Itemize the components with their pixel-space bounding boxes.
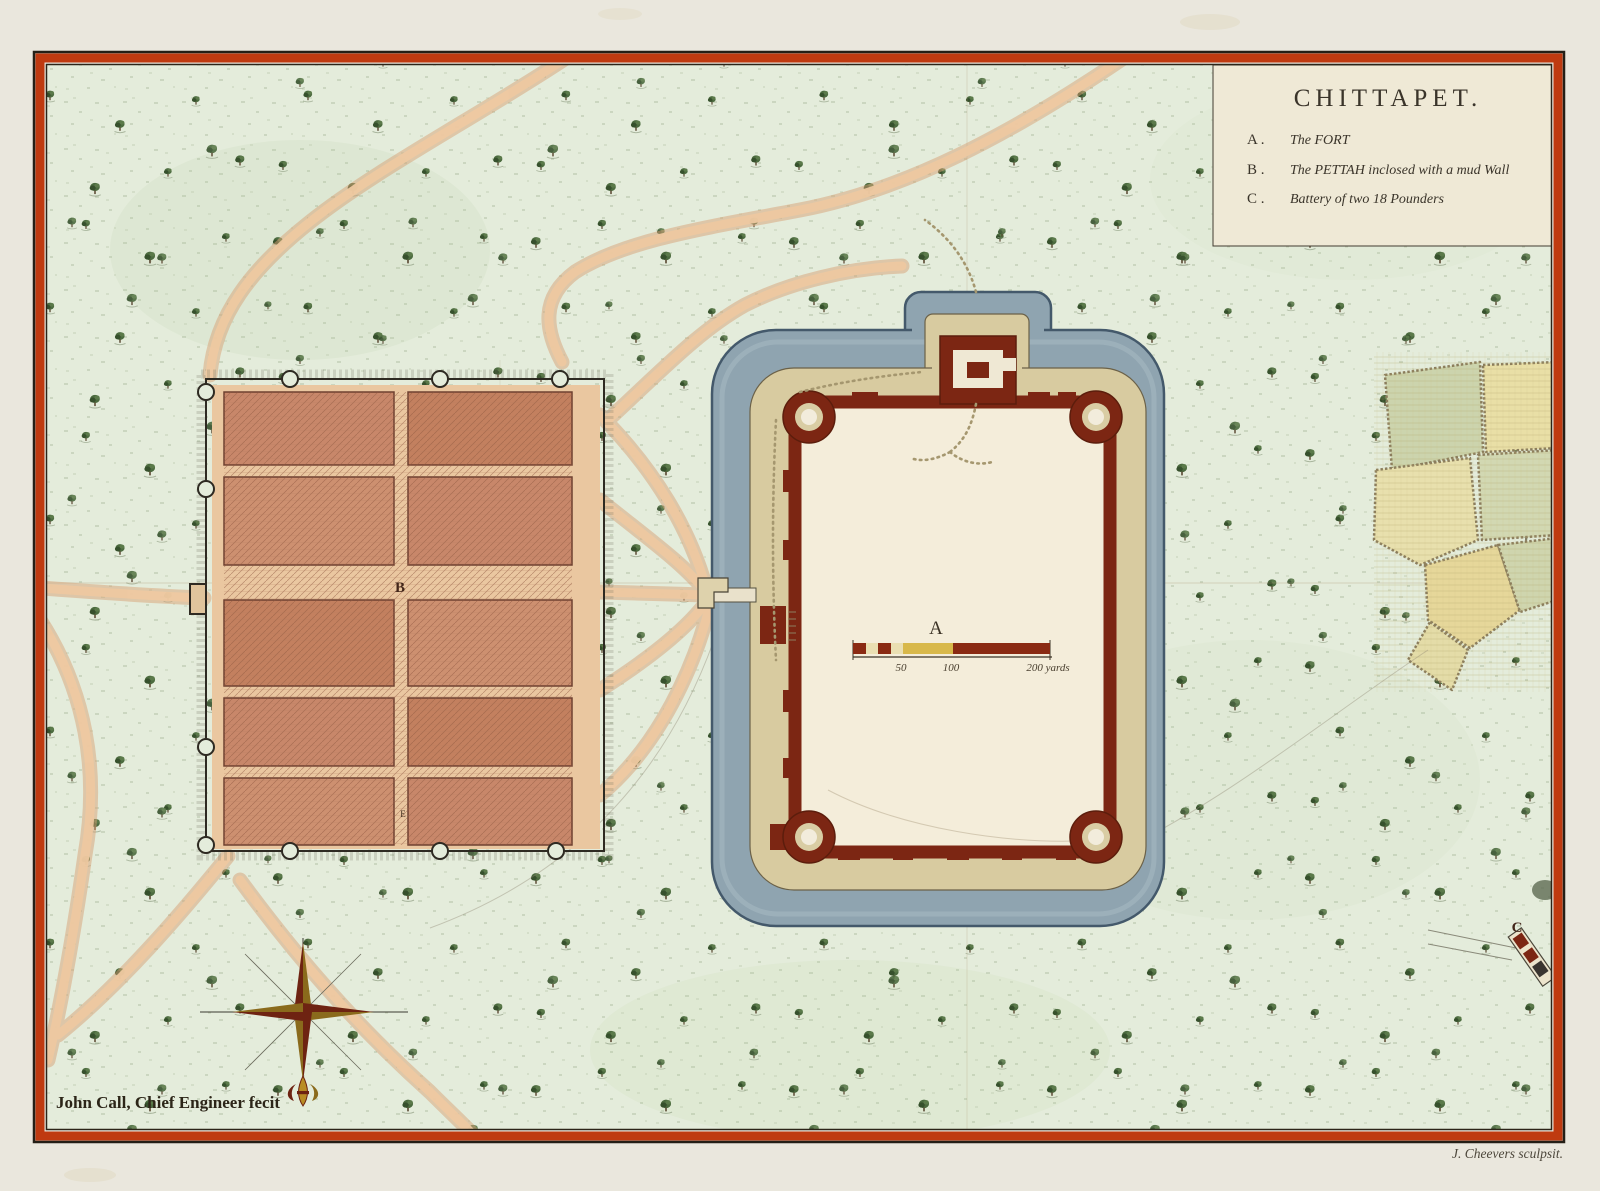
field-plots: [1374, 352, 1559, 692]
legend-text-b: The PETTAH inclosed with a mud Wall: [1290, 163, 1509, 178]
engraver-credit: J. Cheevers sculpsit.: [1452, 1146, 1563, 1161]
pettah: B E: [190, 371, 609, 859]
scale-tick-50: 50: [896, 662, 908, 674]
fort-gatehouse: [940, 336, 1016, 404]
legend-key-c: C .: [1247, 191, 1265, 207]
legend-row-fort: A . The FORT: [1247, 132, 1351, 148]
legend-text-c: Battery of two 18 Pounders: [1290, 192, 1445, 207]
fort-label: A: [929, 618, 943, 639]
battery-label: C: [1512, 920, 1523, 936]
pettah-label: B: [395, 580, 405, 596]
title-cartouche: CHITTAPET. A . The FORT B . The PETTAH i…: [1213, 65, 1557, 246]
pettah-gate: [190, 584, 206, 614]
pettah-street-mark: E: [400, 809, 406, 819]
map-sheet: B E: [0, 0, 1600, 1191]
map-content: B E: [40, 57, 1559, 1141]
legend-text-a: The FORT: [1290, 133, 1351, 148]
pettah-blocks: [224, 392, 572, 845]
legend-key-a: A .: [1247, 132, 1265, 148]
scale-tick-100: 100: [943, 662, 960, 674]
chittapet-map: B E: [0, 0, 1600, 1191]
surveyor-credit: John Call, Chief Engineer fecit: [56, 1093, 280, 1112]
map-title: CHITTAPET.: [1294, 85, 1483, 112]
scale-end-label: 200 yards: [1026, 662, 1069, 674]
legend-key-b: B .: [1247, 162, 1265, 178]
fort-interior: [801, 408, 1104, 846]
